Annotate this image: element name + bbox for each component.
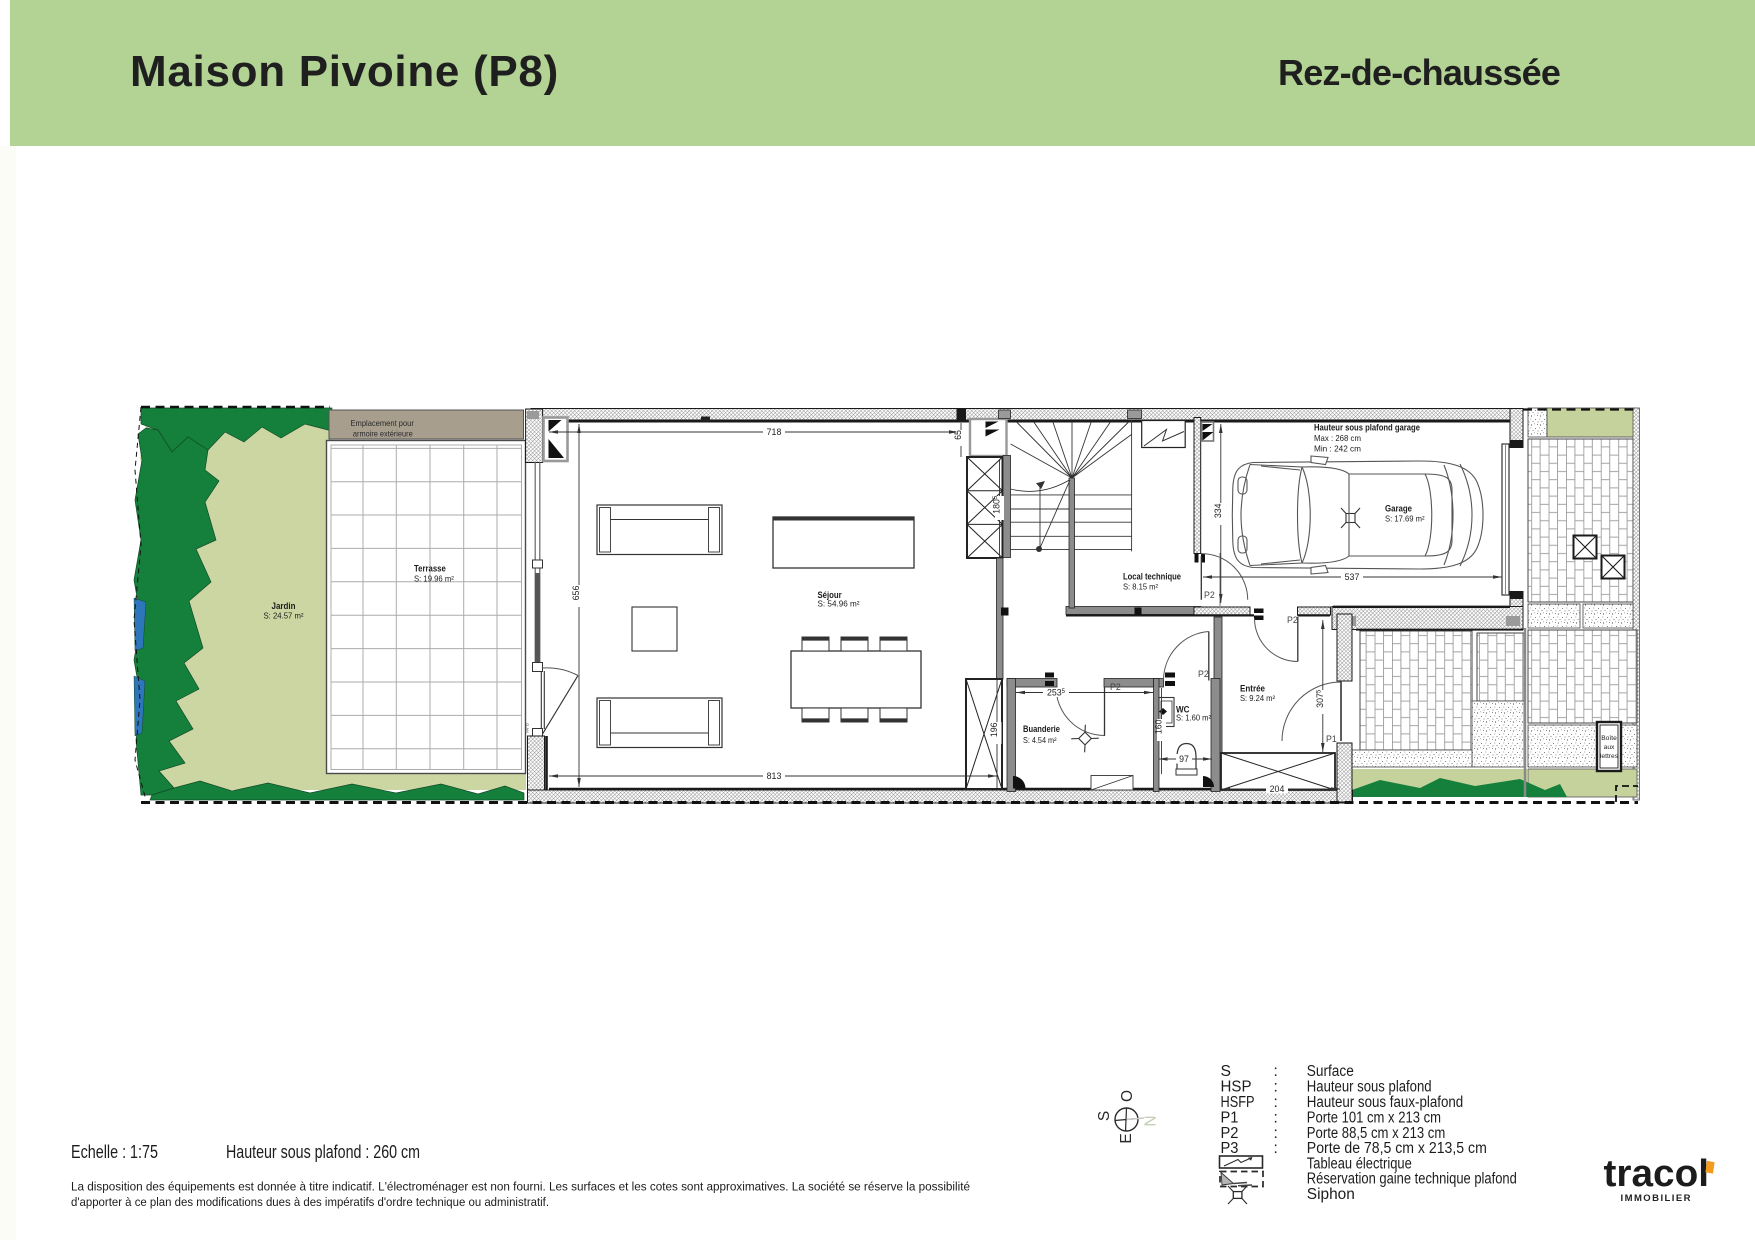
svg-text:P2: P2	[1287, 615, 1298, 625]
svg-text::: :	[1274, 1140, 1278, 1157]
svg-text:Rez-de-chaussée: Rez-de-chaussée	[1278, 52, 1560, 93]
svg-text:armoire extérieure: armoire extérieure	[353, 429, 413, 439]
svg-text:S: 9.24 m²: S: 9.24 m²	[1240, 694, 1275, 703]
svg-text:La disposition des équipements: La disposition des équipements est donné…	[71, 1180, 970, 1194]
svg-text:O: O	[1119, 1090, 1136, 1102]
svg-text:Hauteur sous plafond garage: Hauteur sous plafond garage	[1314, 423, 1420, 433]
svg-text:Siphon: Siphon	[1307, 1186, 1355, 1203]
svg-text:Terrasse: Terrasse	[414, 564, 446, 574]
svg-text:S: 8.15 m²: S: 8.15 m²	[1123, 583, 1158, 592]
svg-text:aux: aux	[1604, 744, 1615, 751]
svg-text:tracol: tracol	[1604, 1153, 1710, 1195]
svg-text:S: 4.54 m²: S: 4.54 m²	[1023, 736, 1057, 745]
svg-text:S: S	[1096, 1111, 1113, 1121]
svg-text:196: 196	[989, 722, 999, 737]
svg-text:813: 813	[767, 771, 782, 781]
svg-text:97: 97	[1179, 754, 1189, 764]
svg-text:Echelle : 1:75: Echelle : 1:75	[71, 1142, 158, 1162]
svg-text:Réservation gaine technique pl: Réservation gaine technique plafond	[1307, 1171, 1517, 1188]
svg-text:P2: P2	[1110, 682, 1121, 692]
svg-text:718: 718	[767, 427, 782, 437]
svg-text:65: 65	[953, 430, 963, 440]
svg-text:d'apporter à ce plan des modif: d'apporter à ce plan des modifications d…	[71, 1195, 549, 1209]
svg-text:AV B: AV B	[525, 723, 530, 733]
svg-text:Emplacement pour: Emplacement pour	[351, 418, 415, 428]
svg-text:Boîte: Boîte	[1601, 735, 1617, 742]
svg-text:656: 656	[571, 586, 581, 601]
svg-text:S: 1.60 m²: S: 1.60 m²	[1176, 713, 1211, 722]
svg-text:Max : 268 cm: Max : 268 cm	[1314, 434, 1361, 443]
svg-text:160: 160	[1154, 719, 1164, 734]
svg-text:P3: P3	[1221, 1140, 1239, 1157]
svg-text:334: 334	[1213, 503, 1223, 518]
svg-text:P2: P2	[1204, 590, 1215, 600]
svg-text:Entrée: Entrée	[1240, 684, 1265, 694]
svg-text:S: 54.96 m²: S: 54.96 m²	[818, 600, 860, 609]
svg-text:S: 19.96 m²: S: 19.96 m²	[414, 574, 454, 583]
svg-text:Min : 242 cm: Min : 242 cm	[1314, 445, 1361, 454]
svg-text:537: 537	[1345, 572, 1360, 582]
svg-text:N: N	[1143, 1115, 1160, 1126]
svg-text:P2: P2	[1198, 669, 1209, 679]
svg-text:S: 17.69 m²: S: 17.69 m²	[1385, 515, 1425, 524]
svg-text:lettres: lettres	[1600, 753, 1619, 760]
svg-text:Jardin: Jardin	[272, 601, 296, 611]
svg-text:IMMOBILIER: IMMOBILIER	[1621, 1193, 1691, 1204]
svg-text:Maison Pivoine (P8): Maison Pivoine (P8)	[130, 47, 559, 96]
svg-text:S: 24.57 m²: S: 24.57 m²	[264, 611, 304, 620]
svg-text:204: 204	[1270, 784, 1285, 794]
svg-text:Hauteur sous plafond : 260 cm: Hauteur sous plafond : 260 cm	[226, 1142, 420, 1162]
svg-text:P1: P1	[1326, 734, 1337, 744]
svg-text:E: E	[1118, 1133, 1135, 1143]
svg-text:Garage: Garage	[1385, 504, 1412, 514]
svg-text:Local technique: Local technique	[1123, 572, 1181, 582]
svg-text:Buanderie: Buanderie	[1023, 724, 1060, 734]
